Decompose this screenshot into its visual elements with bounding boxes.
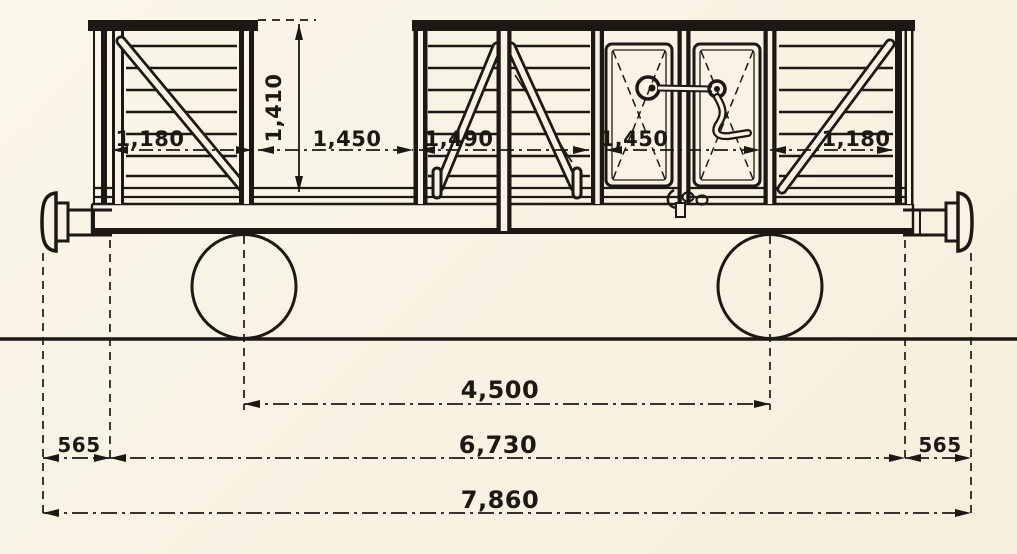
dim-side-height: 1,410 [262,24,303,192]
door-left-leaf [606,44,672,186]
middle-panel-label: 1,490 [425,127,494,151]
diagonal-brace [782,44,890,189]
overhang-right-label: 565 [918,433,961,457]
right-end-panel [779,31,909,204]
dim-wheelbase: 4,500 [244,376,770,408]
end-panel-left-label: 1,180 [116,127,185,151]
side-height-label: 1,410 [262,74,286,143]
drawing-sheet: 1,410 4,500 565 6,730 565 7,860 1,180 1,… [0,0,1017,554]
end-panel-right-label: 1,180 [822,127,891,151]
door-section [598,31,771,217]
overhang-left-label: 565 [57,433,100,457]
left-end-panel [94,31,247,204]
opening-left-label: 1,450 [313,127,382,151]
body-length-label: 6,730 [459,431,537,459]
door-right-leaf [694,44,760,186]
top-rail [88,20,915,31]
overall-length-label: 7,860 [461,486,539,514]
diagonal-brace [121,41,245,190]
wagon-drawing: 1,410 4,500 565 6,730 565 7,860 1,180 1,… [0,0,1017,554]
dim-overall-length: 7,860 [43,486,971,517]
dim-body-row: 565 6,730 565 [43,431,971,462]
wheelbase-label: 4,500 [461,376,539,404]
door-opening-label: 1,450 [600,127,669,151]
